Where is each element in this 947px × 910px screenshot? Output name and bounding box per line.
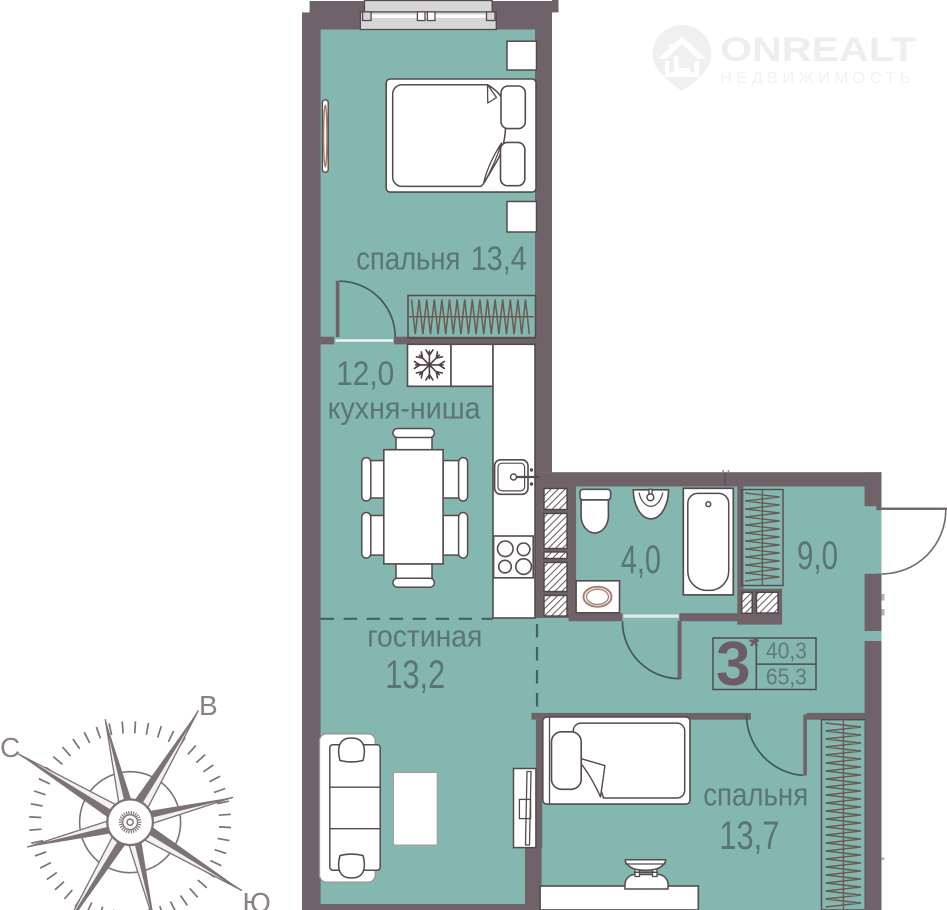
svg-text:С: С [0,732,20,763]
svg-text:9,0: 9,0 [797,534,838,578]
svg-text:13,7: 13,7 [719,814,779,858]
svg-text:4,0: 4,0 [621,538,661,582]
svg-text:ONREALT: ONREALT [720,31,916,69]
svg-text:3: 3 [716,630,750,699]
svg-text:13,4: 13,4 [471,240,527,278]
svg-text:спальня: спальня [703,777,808,813]
svg-text:НЕДВИЖИМОСТЬ: НЕДВИЖИМОСТЬ [720,70,915,87]
svg-text:кухня-ниша: кухня-ниша [328,391,482,426]
svg-text:спальня: спальня [356,241,460,277]
svg-text:В: В [199,690,218,721]
svg-text:Ю: Ю [243,887,271,910]
svg-text:12,0: 12,0 [336,355,394,393]
svg-text:65,3: 65,3 [766,664,807,690]
svg-text:40,3: 40,3 [766,638,807,664]
svg-text:*: * [749,631,760,661]
svg-text:13,2: 13,2 [385,653,445,697]
svg-text:гостиная: гостиная [367,619,482,654]
